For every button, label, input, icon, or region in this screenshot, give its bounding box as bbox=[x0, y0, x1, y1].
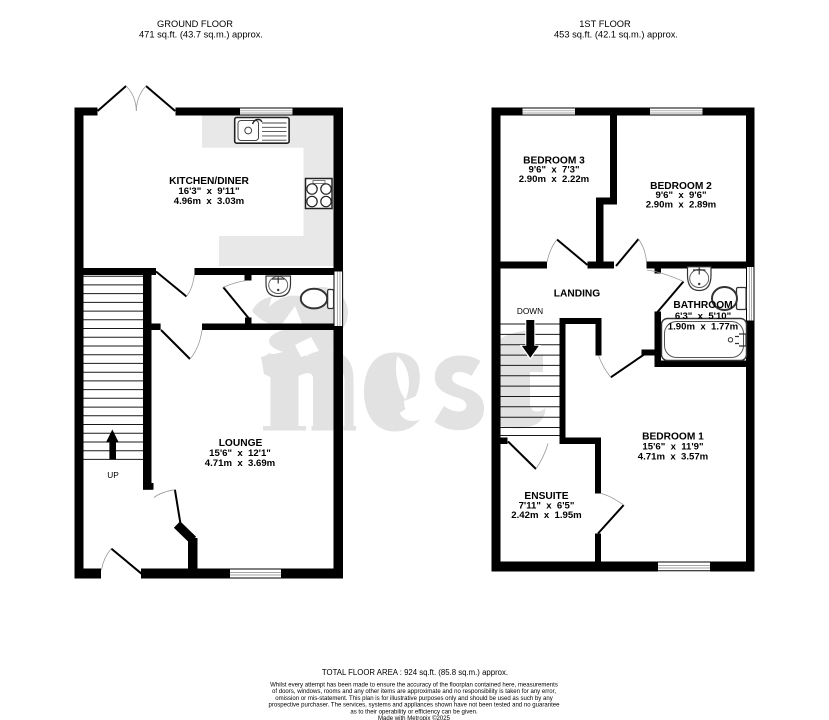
svg-text:6'3" x 5'10": 6'3" x 5'10" bbox=[675, 311, 731, 322]
svg-text:Whilst every attempt has been: Whilst every attempt has been made to en… bbox=[270, 682, 558, 688]
svg-text:of doors, windows, rooms and a: of doors, windows, rooms and any other i… bbox=[272, 689, 556, 695]
svg-text:TOTAL FLOOR AREA : 924 sq.ft.: TOTAL FLOOR AREA : 924 sq.ft. (85.8 sq.m… bbox=[322, 668, 508, 677]
svg-text:4.71m x 3.57m: 4.71m x 3.57m bbox=[638, 452, 708, 463]
svg-text:GROUND FLOOR: GROUND FLOOR bbox=[157, 19, 233, 29]
svg-text:prospective purchaser. The ser: prospective purchaser. The services, sys… bbox=[269, 703, 561, 709]
svg-text:4.96m x 3.03m: 4.96m x 3.03m bbox=[174, 196, 244, 207]
svg-text:LANDING: LANDING bbox=[554, 289, 600, 300]
svg-text:1ST FLOOR: 1ST FLOOR bbox=[579, 19, 631, 29]
svg-text:omission or mis-statement. Thi: omission or mis-statement. This plan is … bbox=[275, 696, 553, 702]
svg-text:2.90m x 2.89m: 2.90m x 2.89m bbox=[646, 200, 716, 211]
svg-text:2.42m x 1.95m: 2.42m x 1.95m bbox=[511, 510, 581, 521]
svg-text:2.90m x 2.22m: 2.90m x 2.22m bbox=[519, 174, 589, 185]
svg-text:4.71m x 3.69m: 4.71m x 3.69m bbox=[205, 458, 275, 469]
svg-text:453 sq.ft. (42.1 sq.m.) approx: 453 sq.ft. (42.1 sq.m.) approx. bbox=[554, 30, 678, 40]
svg-text:471 sq.ft. (43.7 sq.m.) approx: 471 sq.ft. (43.7 sq.m.) approx. bbox=[139, 30, 263, 40]
svg-text:UP: UP bbox=[107, 470, 119, 480]
svg-text:Made with Metropix ©2025: Made with Metropix ©2025 bbox=[378, 715, 451, 720]
svg-text:as to their operability or eff: as to their operability or efficiency ca… bbox=[350, 709, 478, 715]
svg-text:BATHROOM: BATHROOM bbox=[673, 300, 732, 311]
svg-text:1.90m x 1.77m: 1.90m x 1.77m bbox=[668, 322, 738, 333]
svg-text:DOWN: DOWN bbox=[517, 306, 543, 316]
